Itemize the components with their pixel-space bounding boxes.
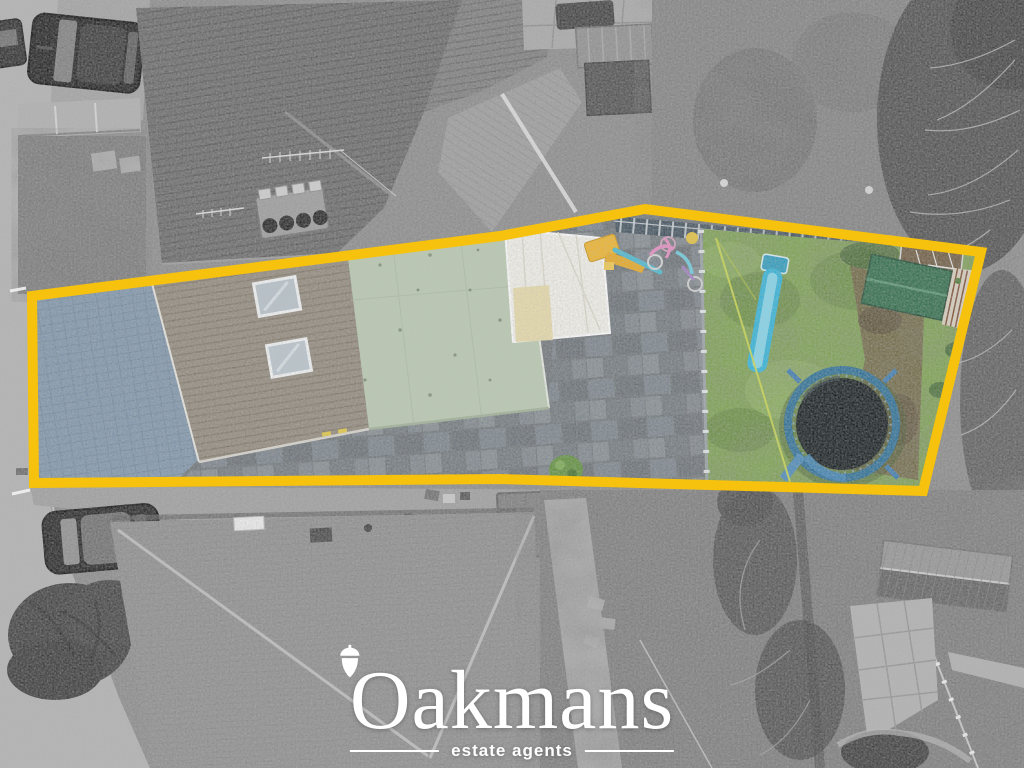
tagline-rule-left xyxy=(350,750,439,752)
brand-name: Oakmans xyxy=(350,662,674,739)
acorn-icon xyxy=(338,645,361,680)
aerial-photo: Oakmans estate agents xyxy=(0,0,1024,768)
brand-name-rest: akmans xyxy=(412,654,675,747)
tagline-rule-right xyxy=(585,750,674,752)
aerial-photo-canvas xyxy=(0,0,1024,768)
estate-agent-watermark: Oakmans estate agents xyxy=(350,662,674,761)
brand-initial-o: O xyxy=(350,662,412,739)
photo-grain xyxy=(0,0,1024,768)
tagline-text: estate agents xyxy=(451,741,573,761)
